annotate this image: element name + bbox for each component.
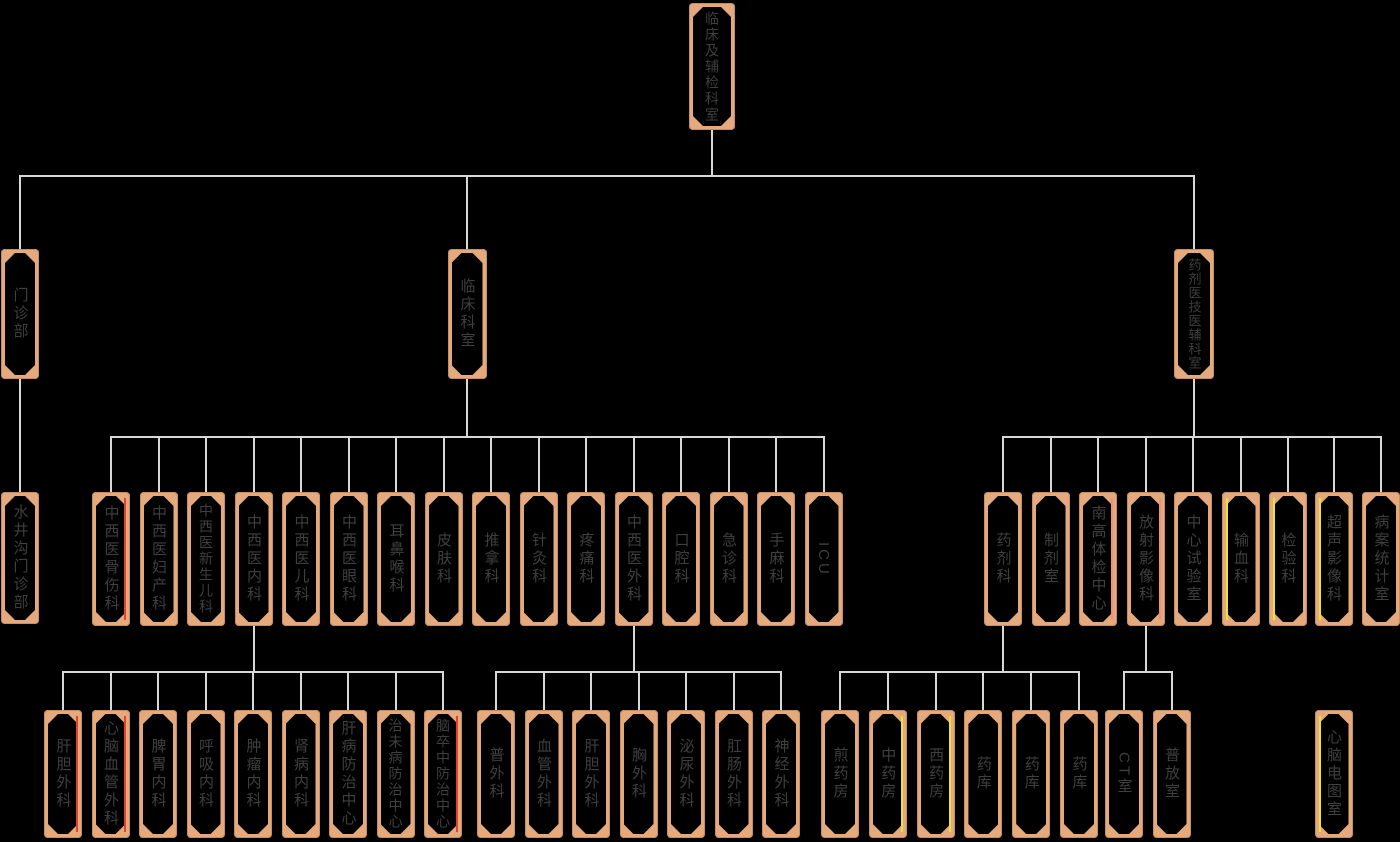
org-node-label: 泌尿外科 — [679, 738, 694, 810]
org-node-frame: 心脑电图室 — [1319, 714, 1349, 834]
connector-line — [1192, 437, 1194, 492]
connector-line — [158, 437, 160, 492]
org-node[interactable]: 手麻科 — [757, 492, 795, 626]
org-node[interactable]: 推拿科 — [472, 492, 510, 626]
org-node[interactable]: 泌尿外科 — [667, 710, 705, 838]
org-node-label: 临床及辅检科室 — [705, 11, 719, 123]
org-node-label: 门诊部 — [13, 287, 28, 341]
connector-line — [780, 672, 782, 710]
connector-line — [1193, 379, 1195, 437]
org-node-label: 中西医新生儿科 — [199, 503, 213, 615]
connector-line — [982, 672, 984, 710]
org-node-frame: 神经外科 — [766, 714, 796, 834]
connector-line — [1287, 437, 1289, 492]
org-node[interactable]: 药库 — [1012, 710, 1050, 838]
connector-line — [348, 437, 350, 492]
org-node-label: 心脑电图室 — [1326, 729, 1341, 819]
org-node-frame: 血管外科 — [529, 714, 559, 834]
connector-line — [1380, 437, 1382, 492]
org-node-frame: 南高体检中心 — [1083, 496, 1113, 622]
org-node-frame: 水井沟门诊部 — [5, 496, 35, 620]
org-node-label: 肝病防治中心 — [341, 720, 356, 828]
org-node[interactable]: 疼痛科 — [567, 492, 605, 626]
org-node-frame: 制剂室 — [1036, 496, 1066, 622]
org-node[interactable]: 肿瘤内科 — [234, 710, 272, 838]
org-node-label: 临床科室 — [460, 278, 475, 350]
connector-line — [1030, 672, 1032, 710]
org-node-frame: 推拿科 — [476, 496, 506, 622]
org-node-label: 普放室 — [1164, 747, 1179, 801]
org-node-frame: 煎药房 — [825, 714, 855, 834]
connector-line — [442, 672, 444, 710]
org-node-frame: 超声影像科 — [1319, 496, 1349, 622]
org-node-label: 煎药房 — [833, 747, 848, 801]
org-node[interactable]: 中西医内科 — [235, 492, 273, 626]
org-node-label: 水井沟门诊部 — [13, 504, 28, 612]
org-node[interactable]: 神经外科 — [762, 710, 800, 838]
org-node-frame: 呼吸内科 — [191, 714, 221, 834]
org-node-frame: 门诊部 — [5, 253, 35, 375]
org-node-frame: 肝胆外科 — [48, 714, 78, 834]
org-node-frame: 检验科 — [1273, 496, 1303, 622]
org-node-label: 药剂科 — [996, 532, 1011, 586]
org-node[interactable]: 普外科 — [477, 710, 515, 838]
org-node-label: 输血科 — [1233, 532, 1248, 586]
connector-line — [638, 672, 640, 710]
org-node[interactable]: 肾病内科 — [282, 710, 320, 838]
connector-line — [823, 437, 825, 492]
org-node-label: 心脑血管外科 — [103, 720, 118, 828]
org-node[interactable]: 药库 — [964, 710, 1002, 838]
org-node-frame: 病案统计室 — [1366, 496, 1396, 622]
org-node-label: CT室 — [1117, 752, 1132, 796]
connector-line — [466, 176, 468, 249]
connector-line — [1171, 672, 1173, 710]
connector-line — [466, 379, 468, 437]
org-node-frame: 放射影像科 — [1131, 496, 1161, 622]
connector-line — [1240, 437, 1242, 492]
connector-line — [443, 437, 445, 492]
connector-line — [19, 175, 1195, 177]
connector-line — [1123, 671, 1173, 673]
org-node[interactable]: ICU — [805, 492, 843, 626]
org-node-label: 肿瘤内科 — [246, 738, 261, 810]
org-node[interactable]: 临床科室 — [448, 249, 487, 379]
org-node[interactable]: 肝胆外科 — [572, 710, 610, 838]
org-node-frame: 疼痛科 — [571, 496, 601, 622]
org-node[interactable]: 中西医骨伤科 — [92, 492, 130, 626]
org-node[interactable]: 治未病防治中心 — [377, 710, 415, 838]
org-node-frame: 肿瘤内科 — [238, 714, 268, 834]
connector-line — [205, 437, 207, 492]
connector-line — [490, 437, 492, 492]
connector-line — [633, 437, 635, 492]
org-node[interactable]: 放射影像科 — [1127, 492, 1165, 626]
org-node-frame: 中西医骨伤科 — [96, 496, 126, 622]
org-node[interactable]: 针灸科 — [520, 492, 558, 626]
connector-line — [1123, 672, 1125, 710]
connector-line — [110, 436, 825, 438]
org-node-label: 普外科 — [489, 747, 504, 801]
org-node-label: 肾病内科 — [293, 738, 308, 810]
connector-line — [839, 672, 841, 710]
connector-line — [1145, 437, 1147, 492]
org-node-label: 超声影像科 — [1326, 514, 1341, 604]
org-node-label: 中西医骨伤科 — [104, 505, 119, 613]
org-node-frame: ICU — [809, 496, 839, 622]
org-node-frame: 药库 — [1064, 714, 1094, 834]
org-node[interactable]: 中西医眼科 — [330, 492, 368, 626]
org-node[interactable]: 药剂医技医辅科室 — [1174, 249, 1214, 379]
connector-line — [1193, 176, 1195, 249]
org-node-frame: 肝病防治中心 — [333, 714, 363, 834]
org-node-frame: 临床及辅检科室 — [693, 7, 731, 126]
org-node-frame: 脾胃内科 — [143, 714, 173, 834]
org-node-frame: 药库 — [1016, 714, 1046, 834]
org-node-label: 皮肤科 — [436, 532, 451, 586]
connector-line — [633, 626, 635, 672]
connector-line — [253, 437, 255, 492]
org-node-label: 制剂室 — [1043, 532, 1058, 586]
connector-line — [205, 672, 207, 710]
org-node-label: 中西医眼科 — [341, 514, 356, 604]
org-node-frame: 药剂医技医辅科室 — [1178, 253, 1210, 375]
org-node[interactable]: 脑卒中防治中心 — [424, 710, 462, 838]
org-node-label: 中西医内科 — [246, 514, 261, 604]
org-node[interactable]: 肝病防治中心 — [329, 710, 367, 838]
org-node-label: 呼吸内科 — [198, 738, 213, 810]
connector-line — [711, 130, 713, 176]
org-chart-canvas: 临床及辅检科室 门诊部 水井沟门诊部 临床科室 中西医骨伤科 中西医妇产科 中西… — [0, 0, 1400, 842]
org-node[interactable]: 水井沟门诊部 — [1, 492, 39, 624]
connector-line — [253, 626, 255, 672]
org-node-label: 手麻科 — [769, 532, 784, 586]
org-node-label: 药库 — [1072, 756, 1087, 792]
connector-line — [1333, 437, 1335, 492]
org-node[interactable]: 超声影像科 — [1315, 492, 1353, 626]
org-node[interactable]: 门诊部 — [1, 249, 39, 379]
org-node-label: 药库 — [976, 756, 991, 792]
org-node[interactable]: 皮肤科 — [425, 492, 463, 626]
org-node[interactable]: 普放室 — [1153, 710, 1191, 838]
org-node[interactable]: 药剂科 — [984, 492, 1022, 626]
connector-line — [585, 437, 587, 492]
connector-line — [110, 437, 112, 492]
org-node-label: 中西医妇产科 — [151, 505, 166, 613]
connector-line — [252, 672, 254, 710]
org-node-frame: 中西医内科 — [239, 496, 269, 622]
org-node[interactable]: 口腔科 — [662, 492, 700, 626]
org-node[interactable]: 南高体检中心 — [1079, 492, 1117, 626]
org-node[interactable]: 胸外科 — [620, 710, 658, 838]
org-node-frame: 输血科 — [1226, 496, 1256, 622]
org-node-label: 中心试验室 — [1186, 514, 1201, 604]
org-node-frame: 心脑血管外科 — [96, 714, 126, 834]
org-node-label: 耳鼻喉科 — [389, 523, 404, 595]
org-node[interactable]: 呼吸内科 — [187, 710, 225, 838]
org-node-frame: CT室 — [1109, 714, 1139, 834]
org-node-label: 脾胃内科 — [151, 738, 166, 810]
org-node-label: 治未病防治中心 — [389, 718, 403, 830]
org-node-frame: 西药房 — [921, 714, 951, 834]
connector-line — [19, 379, 21, 437]
org-node-label: 检验科 — [1281, 532, 1296, 586]
connector-line — [685, 672, 687, 710]
org-node[interactable]: 心脑电图室 — [1315, 710, 1353, 838]
connector-line — [347, 672, 349, 710]
connector-line — [538, 437, 540, 492]
org-node-frame: 中西医外科 — [619, 496, 649, 622]
org-node[interactable]: 中西医儿科 — [282, 492, 320, 626]
org-node-label: 血管外科 — [536, 738, 551, 810]
org-node-frame: 手麻科 — [761, 496, 791, 622]
connector-line — [1002, 626, 1004, 672]
org-node-frame: 治未病防治中心 — [381, 714, 411, 834]
org-node-frame: 口腔科 — [666, 496, 696, 622]
org-node[interactable]: 耳鼻喉科 — [377, 492, 415, 626]
org-node-frame: 肛肠外科 — [719, 714, 749, 834]
connector-line — [887, 672, 889, 710]
connector-line — [395, 672, 397, 710]
org-node[interactable]: 急诊科 — [710, 492, 748, 626]
org-node[interactable]: 病案统计室 — [1362, 492, 1400, 626]
connector-line — [680, 437, 682, 492]
org-node-label: 药剂医技医辅科室 — [1188, 258, 1201, 370]
org-node-label: 推拿科 — [484, 532, 499, 586]
connector-line — [1145, 626, 1147, 672]
org-node[interactable]: 煎药房 — [821, 710, 859, 838]
org-node-label: ICU — [816, 542, 831, 577]
org-node[interactable]: 中心试验室 — [1174, 492, 1212, 626]
org-node-label: 针灸科 — [531, 532, 546, 586]
connector-line — [62, 672, 64, 710]
org-node-label: 肝胆外科 — [56, 738, 71, 810]
org-node[interactable]: 中西医新生儿科 — [187, 492, 225, 626]
connector-line — [300, 437, 302, 492]
org-node-label: 病案统计室 — [1374, 514, 1389, 604]
org-node-frame: 中药房 — [873, 714, 903, 834]
org-node-frame: 肝胆外科 — [576, 714, 606, 834]
org-node-frame: 临床科室 — [452, 253, 483, 375]
connector-line — [1050, 437, 1052, 492]
org-node-label: 脑卒中防治中心 — [436, 718, 450, 830]
org-node[interactable]: 输血科 — [1222, 492, 1260, 626]
org-node[interactable]: 检验科 — [1269, 492, 1307, 626]
org-node-frame: 胸外科 — [624, 714, 654, 834]
org-node-frame: 急诊科 — [714, 496, 744, 622]
org-node-frame: 耳鼻喉科 — [381, 496, 411, 622]
org-node[interactable]: 临床及辅检科室 — [689, 3, 735, 130]
org-node-label: 南高体检中心 — [1091, 505, 1106, 613]
org-node-label: 中药房 — [880, 747, 895, 801]
org-node-label: 放射影像科 — [1138, 514, 1153, 604]
org-node-frame: 肾病内科 — [286, 714, 316, 834]
org-node-frame: 普外科 — [481, 714, 511, 834]
org-node-label: 西药房 — [928, 747, 943, 801]
connector-line — [395, 437, 397, 492]
org-node[interactable]: 药库 — [1060, 710, 1098, 838]
org-node-frame: 针灸科 — [524, 496, 554, 622]
org-node-frame: 中西医儿科 — [286, 496, 316, 622]
org-node-label: 胸外科 — [631, 747, 646, 801]
org-node-frame: 中心试验室 — [1178, 496, 1208, 622]
connector-line — [775, 437, 777, 492]
org-node-frame: 泌尿外科 — [671, 714, 701, 834]
org-node-frame: 药库 — [968, 714, 998, 834]
connector-line — [19, 437, 21, 492]
connector-line — [495, 672, 497, 710]
org-node-frame: 中西医新生儿科 — [191, 496, 221, 622]
connector-line — [1002, 437, 1004, 492]
org-node-label: 肝胆外科 — [584, 738, 599, 810]
org-node[interactable]: 中西医妇产科 — [140, 492, 178, 626]
org-node-frame: 中西医眼科 — [334, 496, 364, 622]
connector-line — [935, 672, 937, 710]
org-node-frame: 普放室 — [1157, 714, 1187, 834]
connector-line — [543, 672, 545, 710]
connector-line — [157, 672, 159, 710]
connector-line — [728, 437, 730, 492]
org-node-label: 口腔科 — [674, 532, 689, 586]
org-node[interactable]: CT室 — [1105, 710, 1143, 838]
org-node[interactable]: 肝胆外科 — [44, 710, 82, 838]
org-node[interactable]: 中西医外科 — [615, 492, 653, 626]
org-node-label: 疼痛科 — [579, 532, 594, 586]
org-node[interactable]: 中药房 — [869, 710, 907, 838]
org-node-label: 中西医儿科 — [294, 514, 309, 604]
connector-line — [1097, 437, 1099, 492]
org-node-frame: 脑卒中防治中心 — [428, 714, 458, 834]
org-node[interactable]: 西药房 — [917, 710, 955, 838]
org-node[interactable]: 脾胃内科 — [139, 710, 177, 838]
connector-line — [733, 672, 735, 710]
org-node-label: 药库 — [1024, 756, 1039, 792]
org-node-frame: 中西医妇产科 — [144, 496, 174, 622]
connector-line — [590, 672, 592, 710]
org-node[interactable]: 肛肠外科 — [715, 710, 753, 838]
org-node-label: 神经外科 — [774, 738, 789, 810]
org-node-label: 中西医外科 — [626, 514, 641, 604]
connector-line — [839, 671, 1080, 673]
org-node-label: 急诊科 — [721, 532, 736, 586]
org-node[interactable]: 心脑血管外科 — [92, 710, 130, 838]
connector-line — [110, 672, 112, 710]
org-node-frame: 皮肤科 — [429, 496, 459, 622]
org-node-frame: 药剂科 — [988, 496, 1018, 622]
connector-line — [300, 672, 302, 710]
org-node-label: 肛肠外科 — [726, 738, 741, 810]
connector-line — [19, 176, 21, 249]
org-node[interactable]: 血管外科 — [525, 710, 563, 838]
org-node[interactable]: 制剂室 — [1032, 492, 1070, 626]
connector-line — [1078, 672, 1080, 710]
